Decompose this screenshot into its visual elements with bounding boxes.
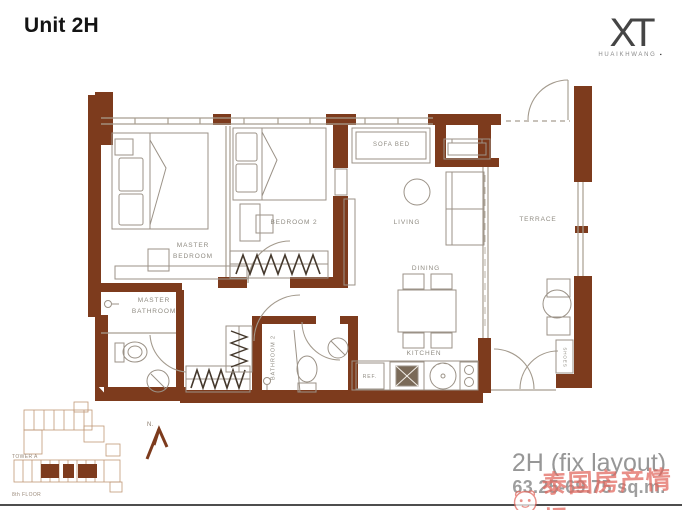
key-plan-highlighted-units [41,464,97,478]
master-bathroom-label: MASTER BATHROOM [118,295,190,317]
living-round-table [404,179,430,205]
key-plan-tower-label: TOWER A [12,452,38,463]
key-plan [14,402,122,492]
bedroom2-label: BEDROOM 2 [252,217,336,228]
wardrobe-hall [186,366,250,392]
living-sofa [446,172,484,245]
terrace-label: TERRACE [498,214,578,225]
watermark: 泰国房产情报 [509,460,682,510]
dining-label: DINING [390,263,462,274]
north-arrow-icon [147,429,167,459]
wardrobe-bedroom2 [230,251,328,278]
sofa-bed-label: SOFA BED [353,140,430,151]
kitchen-sink [390,362,424,390]
bathroom2-basin [328,338,348,358]
bathroom2-door-arc [302,322,340,360]
watermark-mascot-icon [509,484,541,510]
entrance-door-right-arc [520,351,558,389]
master-shower-icon [105,301,120,308]
floorplan-slide: Unit 2H XT HUAIKHWANG ▪ [0,0,682,510]
master-bed [112,133,208,229]
watermark-text: 泰国房产情报 [541,460,682,510]
entrance-door-left-arc [494,349,534,389]
kitchen-label: KITCHEN [386,348,462,359]
master-toilet [115,342,147,362]
north-label: N. [147,420,154,431]
wall-niche-shelf [335,169,347,195]
dining-set [398,274,456,348]
terrace-top-door-arc [528,80,568,120]
floor-plan-svg [0,0,682,510]
bathroom2-toilet [297,356,317,392]
door-arcs [150,80,568,389]
stove [460,362,478,390]
wardrobe-vertical [226,326,252,372]
bedroom2-bed [233,128,326,200]
shoes-label: SHOES [560,333,571,383]
master-bedroom-label: MASTER BEDROOM [153,240,233,262]
key-plan-floor-label: 8th FLOOR [12,490,41,501]
washing-machine [430,363,456,389]
refrigerator-label: REF. [356,372,384,383]
bathroom2-label: BATHROOM 2 [269,328,280,388]
living-label: LIVING [368,217,446,228]
terrace-set [543,279,571,335]
